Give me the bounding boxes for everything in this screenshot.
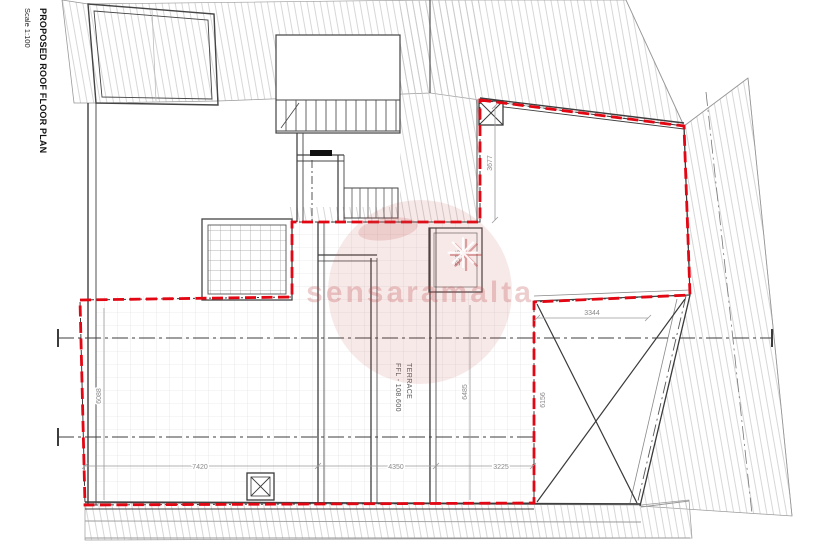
- stair-landing-bar: [310, 150, 332, 156]
- hatch-bottom-band: [85, 500, 692, 540]
- dim-bottom-right: 3225: [493, 464, 509, 471]
- roof-plan-drawing: 7420 4350 3225 3344 3677 5515 6485 6156 …: [0, 0, 840, 542]
- dim-bottom-mid: 4350: [388, 464, 404, 471]
- titleblock: PROPOSED ROOF FLOOR PLAN Scale 1:100: [23, 8, 48, 153]
- skylight-grille: [202, 219, 292, 300]
- dim-terrace-height-left: 6088: [96, 388, 103, 404]
- page-title: PROPOSED ROOF FLOOR PLAN: [38, 8, 48, 153]
- shaft-box-top: [479, 101, 503, 125]
- page-scale: Scale 1:100: [23, 8, 32, 48]
- roof-plan-page: 7420 4350 3225 3344 3677 5515 6485 6156 …: [0, 0, 840, 542]
- dim-bottom-left: 7420: [192, 464, 208, 471]
- watermark-star-icon: ✳: [445, 230, 480, 277]
- shaft-box-bottom: [247, 473, 274, 500]
- dim-terrace-height-mid: 6485: [462, 384, 469, 400]
- dim-upper-right-width: 3344: [584, 310, 600, 317]
- watermark-text: sensaramalta: [306, 276, 534, 309]
- hatch-beside-stairs: [400, 0, 480, 222]
- stair-upper: [276, 35, 400, 133]
- dim-upper-right-height: 3677: [487, 155, 494, 171]
- dim-terrace-height-right: 6156: [540, 392, 547, 408]
